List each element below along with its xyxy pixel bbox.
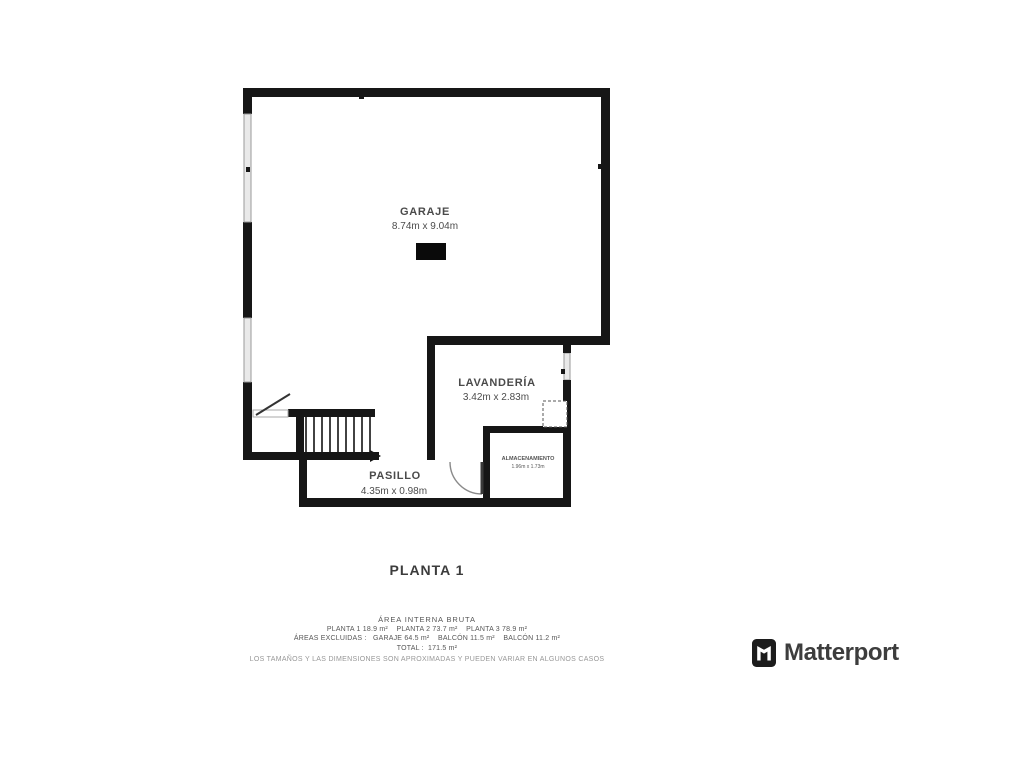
- room-label-almacenamiento: ALMACENAMIENTO: [502, 456, 555, 462]
- matterport-icon: [752, 639, 776, 667]
- area-line-plantas: PLANTA 1 18.9 m² PLANTA 2 73.7 m² PLANTA…: [250, 625, 605, 635]
- area-summary-header: ÁREA INTERNA BRUTA: [250, 615, 605, 625]
- area-summary: ÁREA INTERNA BRUTA PLANTA 1 18.9 m² PLAN…: [250, 615, 605, 663]
- room-dims-lavanderia: 3.42m x 2.83m: [463, 392, 529, 403]
- room-label-lavanderia: LAVANDERÍA: [458, 377, 535, 389]
- matterport-logo: Matterport: [752, 638, 899, 668]
- appliance-dashed-box: [543, 401, 567, 427]
- room-dims-garaje: 8.74m x 9.04m: [392, 221, 458, 232]
- door-swing-arc: [450, 462, 482, 494]
- room-label-pasillo: PASILLO: [369, 470, 421, 482]
- area-disclaimer: LOS TAMAÑOS Y LAS DIMENSIONES SON APROXI…: [250, 656, 605, 663]
- garage-floor-marker: [416, 243, 446, 260]
- matterport-wordmark: Matterport: [784, 639, 899, 667]
- floorplan-page: GARAJE 8.74m x 9.04m LAVANDERÍA 3.42m x …: [0, 0, 1011, 768]
- room-dims-almacenamiento: 1.96m x 1.73m: [511, 464, 544, 470]
- stairs-direction-arrow: [370, 450, 381, 462]
- area-line-total: TOTAL : 171.5 m²: [250, 644, 605, 654]
- room-dims-pasillo: 4.35m x 0.98m: [361, 486, 427, 497]
- room-label-garaje: GARAJE: [400, 206, 450, 218]
- closet-door: [253, 394, 290, 417]
- area-line-excluidas: ÁREAS EXCLUIDAS : GARAJE 64.5 m² BALCÓN …: [250, 634, 605, 644]
- floor-title: PLANTA 1: [390, 562, 465, 578]
